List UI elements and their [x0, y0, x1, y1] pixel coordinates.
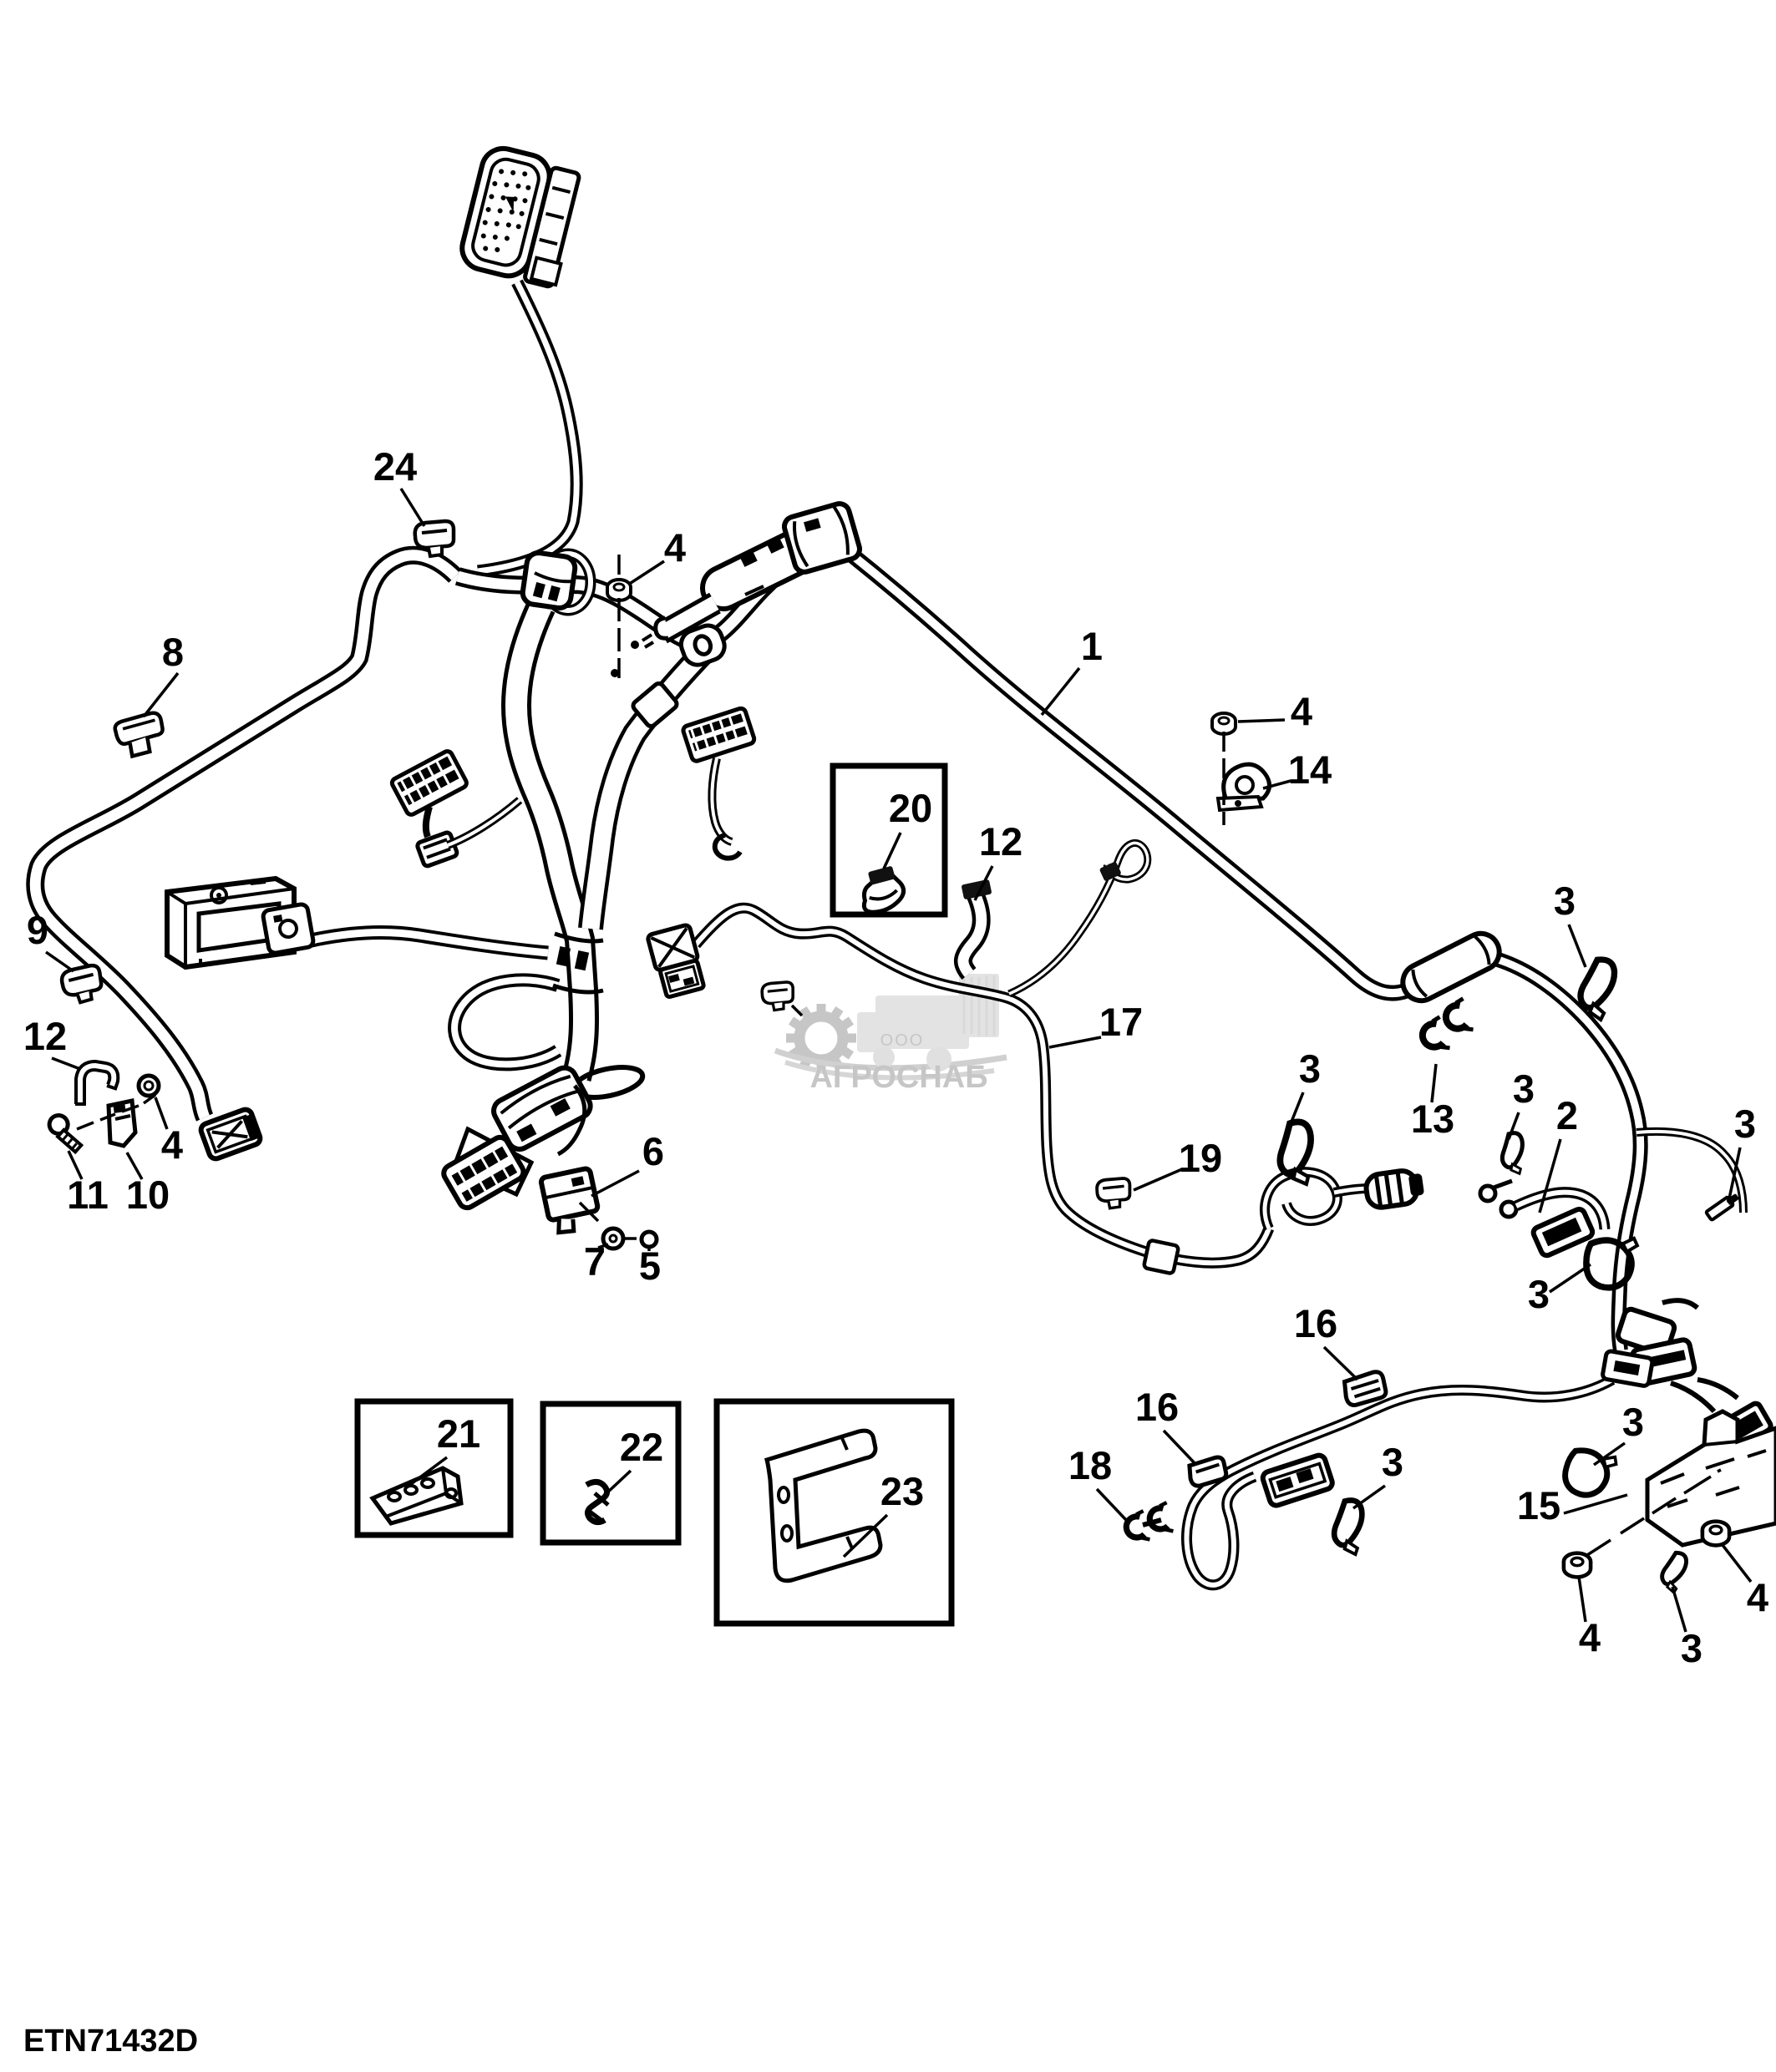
- svg-text:3: 3: [1382, 1440, 1403, 1484]
- svg-text:16: 16: [1135, 1385, 1179, 1429]
- svg-text:12: 12: [979, 819, 1022, 864]
- svg-text:20: 20: [889, 786, 932, 830]
- svg-text:ООО: ООО: [880, 1031, 925, 1050]
- svg-text:15: 15: [1517, 1483, 1560, 1527]
- svg-text:3: 3: [1299, 1046, 1321, 1091]
- svg-text:23: 23: [880, 1469, 924, 1513]
- svg-text:4: 4: [161, 1122, 183, 1167]
- svg-text:3: 3: [1528, 1272, 1550, 1316]
- svg-text:19: 19: [1179, 1136, 1222, 1180]
- svg-text:6: 6: [642, 1129, 664, 1173]
- svg-text:2: 2: [1556, 1093, 1578, 1137]
- svg-text:13: 13: [1411, 1097, 1454, 1141]
- svg-text:14: 14: [1288, 747, 1332, 792]
- svg-text:4: 4: [1747, 1575, 1768, 1619]
- svg-text:21: 21: [437, 1411, 480, 1456]
- svg-text:11: 11: [67, 1173, 109, 1217]
- svg-text:4: 4: [1579, 1615, 1601, 1659]
- svg-text:5: 5: [639, 1244, 661, 1288]
- svg-text:4: 4: [1291, 689, 1312, 733]
- svg-text:3: 3: [1681, 1626, 1702, 1670]
- svg-text:3: 3: [1734, 1102, 1756, 1146]
- svg-text:АГРОСНАБ: АГРОСНАБ: [809, 1060, 987, 1095]
- svg-text:1: 1: [1081, 624, 1103, 668]
- svg-text:24: 24: [373, 444, 417, 489]
- svg-text:9: 9: [27, 908, 48, 952]
- svg-text:4: 4: [664, 525, 686, 570]
- svg-text:ETN71432D: ETN71432D: [23, 2024, 198, 2059]
- svg-text:8: 8: [162, 630, 184, 674]
- svg-text:3: 3: [1622, 1400, 1644, 1444]
- svg-text:10: 10: [126, 1173, 170, 1217]
- svg-text:3: 3: [1554, 879, 1576, 923]
- svg-text:17: 17: [1099, 1000, 1143, 1044]
- svg-text:12: 12: [23, 1014, 67, 1058]
- svg-text:18: 18: [1068, 1443, 1112, 1487]
- svg-text:22: 22: [620, 1425, 663, 1469]
- svg-text:16: 16: [1294, 1301, 1337, 1345]
- svg-text:3: 3: [1513, 1066, 1535, 1111]
- svg-text:7: 7: [584, 1239, 606, 1284]
